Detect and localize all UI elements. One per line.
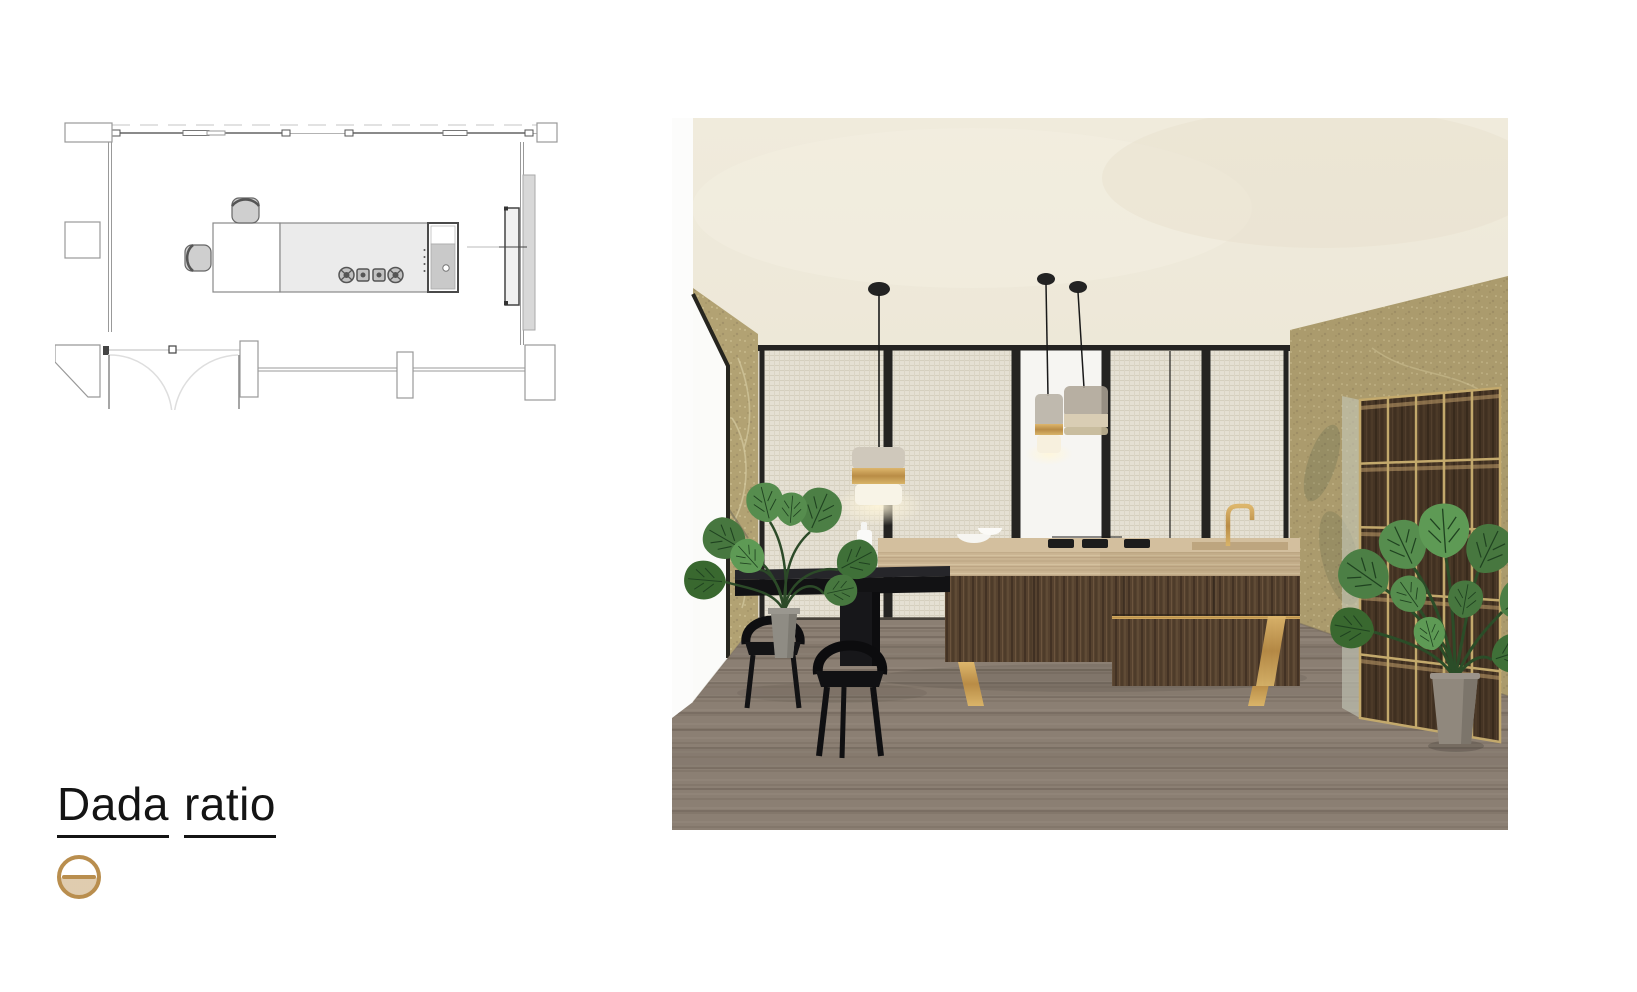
plan-bottom-column: [397, 352, 413, 398]
brand-logo: [57, 855, 101, 899]
plan-kitchen-island: [185, 198, 458, 292]
plan-chamfer-wall: [55, 345, 100, 397]
interior-render-figure: [672, 118, 1508, 830]
plan-shelf-unit: [505, 208, 519, 305]
title-word-1: Dada: [57, 781, 169, 838]
plan-chair-top: [232, 198, 259, 223]
floor-plan-figure: [55, 110, 560, 410]
plan-entry-door: [103, 346, 258, 410]
plan-bottom-right-block: [525, 345, 555, 400]
presentation-page: Dadaratio: [0, 0, 1637, 992]
logo-horizon-bar: [62, 875, 96, 879]
plan-bottom-wall: [258, 368, 525, 371]
plan-island-counter: [280, 223, 428, 292]
plan-chair-left: [185, 245, 211, 271]
plan-left-wall: [109, 142, 112, 332]
plan-left-pier: [65, 222, 100, 258]
interior-render-scene: [672, 118, 1508, 830]
plan-door-post: [240, 341, 258, 397]
plan-dining-extension: [213, 223, 280, 292]
plan-right-wall: [467, 142, 535, 345]
title-word-2: ratio: [184, 781, 276, 838]
plan-tall-unit: [523, 175, 535, 330]
project-title: Dadaratio: [57, 781, 276, 838]
floor-plan-drawing: [55, 110, 560, 410]
sink-basin: [1192, 542, 1288, 550]
plan-window-band: [112, 130, 537, 136]
